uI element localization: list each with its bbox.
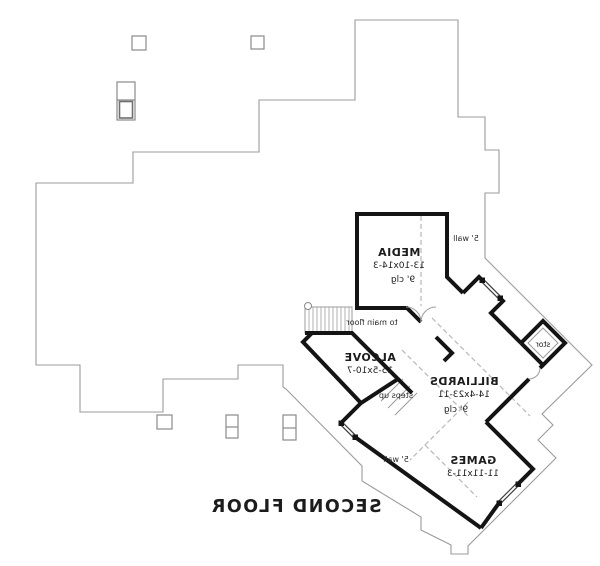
media-room-walls: [357, 214, 463, 361]
window-alcove-southwest: [339, 421, 359, 441]
billiards-room-dims: 14-4x23-11: [438, 390, 490, 400]
media-room-label: MEDIA: [378, 246, 421, 259]
wall-height-note-media: 5' wall: [453, 234, 479, 243]
billiards-room-ceiling: 9' clg: [444, 405, 468, 415]
window-games-southeast: [497, 482, 522, 507]
roof-square-top-right: [251, 36, 264, 49]
alcove-room-dims: 15-5x10-7: [347, 366, 393, 376]
page-title: SECOND FLOOR: [210, 497, 381, 517]
media-room-dims: 13-10x14-3: [373, 261, 425, 271]
wall-height-note-games: 5' wall: [383, 455, 409, 464]
alcove-room-label: ALCOVE: [344, 351, 396, 364]
games-room-dims: 11-11x11-3: [447, 469, 499, 479]
games-room-label: GAMES: [450, 454, 496, 467]
door-arc-storage: [529, 368, 540, 379]
window-media-east: [480, 278, 504, 302]
chimney: [117, 82, 135, 120]
billiards-room-label: BILLIARDS: [429, 375, 498, 388]
floor-plan-canvas: MEDIA 13-10x14-3 9' clg ALCOVE 15-5x10-7…: [0, 0, 600, 566]
stair-treads: [309, 307, 349, 333]
steps-up-note: steps up: [379, 391, 413, 400]
media-room-ceiling: 9' clg: [391, 275, 415, 285]
roof-square-bottom-1: [157, 415, 172, 429]
roof-vent-bottom-3: [283, 415, 296, 440]
labels: MEDIA 13-10x14-3 9' clg ALCOVE 15-5x10-7…: [210, 234, 550, 517]
roof-square-top-left: [132, 36, 146, 50]
storage-room-label: stor: [535, 340, 550, 349]
roof-vent-bottom-2: [226, 415, 238, 438]
to-main-floor-note: to main floor: [346, 318, 398, 327]
floor-plan-page: MEDIA 13-10x14-3 9' clg ALCOVE 15-5x10-7…: [0, 0, 600, 566]
newel-post: [305, 303, 312, 310]
stair-run: [305, 303, 353, 334]
